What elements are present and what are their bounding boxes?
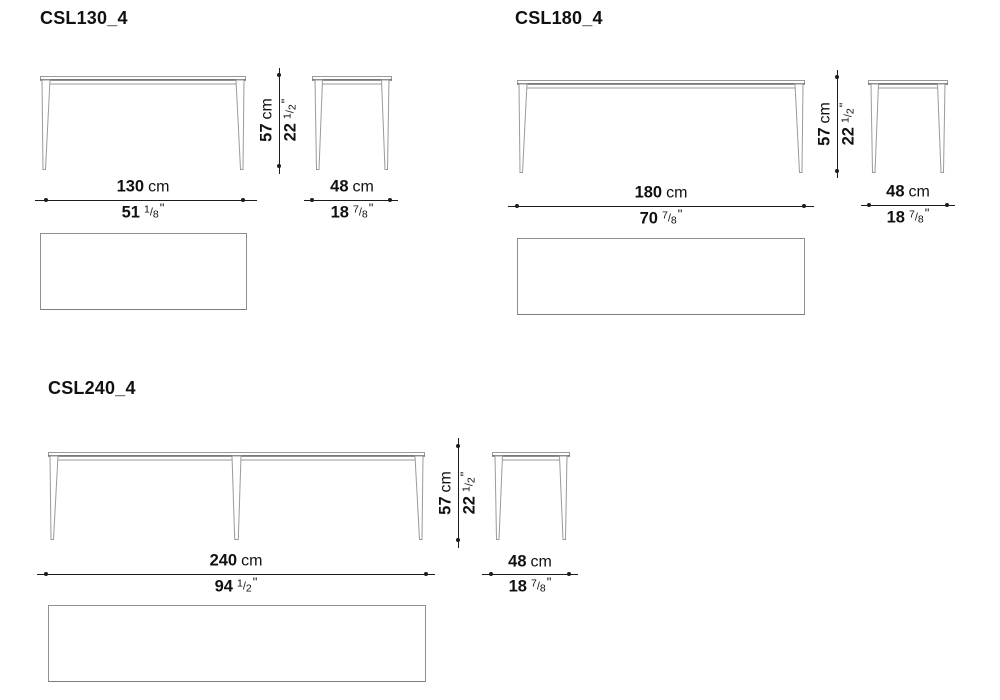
dimension-endpoint-dot [44, 572, 48, 576]
depth-inch-label: 187/8" [887, 210, 930, 227]
top-view-drawing-csl130 [40, 233, 247, 310]
width-dimension-line [35, 200, 257, 201]
height-dimension-line [458, 438, 459, 548]
table-leg-middle [232, 456, 241, 540]
tabletop [518, 81, 805, 84]
dimension-endpoint-dot [388, 198, 392, 202]
dimension-endpoint-dot [456, 538, 460, 542]
product-title-csl240: CSL240_4 [48, 378, 136, 399]
product-title-csl180: CSL180_4 [515, 8, 603, 29]
dimension-endpoint-dot [867, 203, 871, 207]
width-cm-label: 180cm [635, 185, 688, 202]
dimension-endpoint-dot [945, 203, 949, 207]
width-dimension-line [37, 574, 435, 575]
height-dimension-line [837, 70, 838, 178]
height-cm-label: 57cm [438, 471, 455, 515]
table-leg-right [795, 84, 803, 173]
table-leg-right [382, 80, 390, 170]
table-leg-right [415, 456, 423, 540]
tabletop [493, 453, 570, 456]
table-leg-right [938, 84, 946, 173]
width-inch-label: 941/2" [215, 579, 258, 596]
top-view-drawing-csl240 [48, 605, 426, 682]
table-leg-left [42, 80, 50, 170]
depth-dimension-line [304, 200, 398, 201]
table-leg-left [50, 456, 58, 540]
width-cm-label: 240cm [210, 553, 263, 570]
dimension-endpoint-dot [835, 169, 839, 173]
front-view-drawing-csl180 [517, 80, 805, 173]
dimension-endpoint-dot [515, 204, 519, 208]
depth-cm-label: 48cm [508, 554, 552, 571]
dimension-endpoint-dot [310, 198, 314, 202]
depth-inch-label: 187/8" [509, 579, 552, 596]
side-view-drawing-csl130 [312, 76, 392, 170]
table-leg-left [871, 84, 879, 173]
width-cm-label: 130cm [117, 179, 170, 196]
table-leg-right [236, 80, 244, 170]
table-leg-left [495, 456, 503, 540]
depth-cm-label: 48cm [886, 184, 930, 201]
height-inch-label: 221/2" [841, 103, 858, 146]
depth-dimension-line [861, 205, 955, 206]
width-inch-label: 511/8" [122, 205, 165, 222]
top-view-drawing-csl180 [517, 238, 805, 315]
side-view-drawing-csl180 [868, 80, 948, 173]
tabletop [313, 77, 392, 80]
width-dimension-line [508, 206, 814, 207]
dimension-endpoint-dot [567, 572, 571, 576]
width-inch-label: 707/8" [640, 211, 683, 228]
table-leg-right [560, 456, 568, 540]
depth-cm-label: 48cm [330, 179, 374, 196]
product-title-csl130: CSL130_4 [40, 8, 128, 29]
side-view-drawing-csl240 [492, 452, 570, 540]
dimension-endpoint-dot [489, 572, 493, 576]
depth-dimension-line [482, 574, 578, 575]
dimension-endpoint-dot [44, 198, 48, 202]
height-inch-label: 221/2" [283, 99, 300, 142]
height-inch-label: 221/2" [462, 472, 479, 515]
dimension-endpoint-dot [456, 444, 460, 448]
dimension-endpoint-dot [277, 164, 281, 168]
table-leg-left [519, 84, 527, 173]
height-cm-label: 57cm [817, 102, 834, 146]
front-view-drawing-csl240 [48, 452, 425, 540]
spec-sheet: CSL130_4 57cm 221/2" 130cm 511/8" 48cm [0, 0, 1000, 700]
dimension-endpoint-dot [424, 572, 428, 576]
tabletop [49, 453, 425, 456]
dimension-endpoint-dot [835, 75, 839, 79]
tabletop [41, 77, 246, 80]
table-leg-left [315, 80, 323, 170]
tabletop [869, 81, 948, 84]
front-view-drawing-csl130 [40, 76, 246, 170]
dimension-endpoint-dot [802, 204, 806, 208]
depth-inch-label: 187/8" [331, 205, 374, 222]
height-cm-label: 57cm [259, 98, 276, 142]
dimension-endpoint-dot [241, 198, 245, 202]
height-dimension-line [279, 68, 280, 174]
dimension-endpoint-dot [277, 73, 281, 77]
